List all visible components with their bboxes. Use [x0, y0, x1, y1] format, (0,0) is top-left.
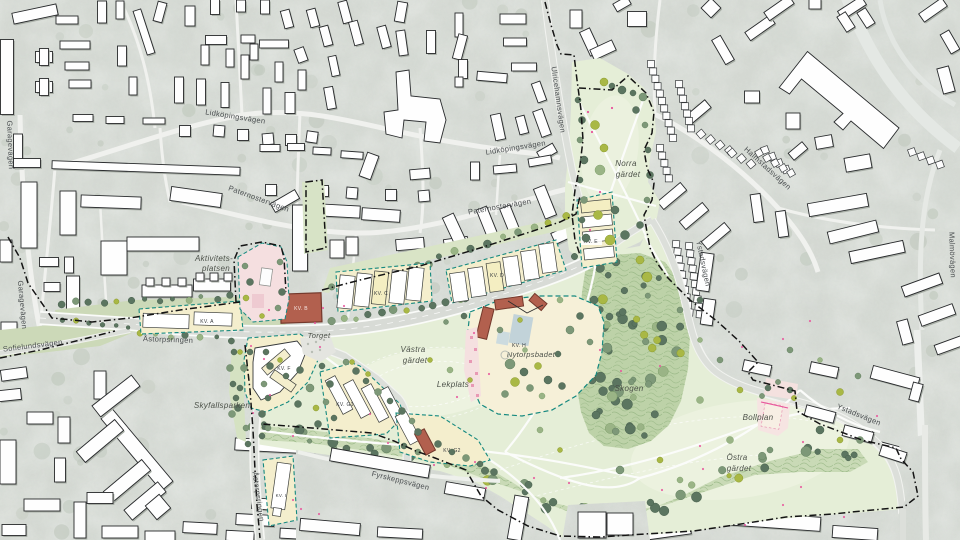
svg-text:KV. D: KV. D	[490, 273, 504, 279]
svg-text:KV. I: KV. I	[276, 493, 287, 498]
svg-text:Åstorpsringen: Åstorpsringen	[143, 334, 193, 345]
svg-text:Aktivitets-: Aktivitets-	[194, 254, 233, 263]
svg-text:gärdet: gärdet	[727, 464, 752, 473]
svg-text:Malmövägen: Malmövägen	[947, 232, 958, 278]
svg-text:KV. F: KV. F	[277, 366, 291, 372]
svg-text:Östra: Östra	[726, 453, 747, 462]
svg-text:platsen: platsen	[201, 264, 230, 273]
svg-text:KV. A: KV. A	[200, 319, 214, 325]
svg-text:KV. G1: KV. G1	[336, 402, 353, 408]
svg-text:Lekplats: Lekplats	[437, 380, 469, 389]
svg-text:Skogen: Skogen	[615, 384, 644, 393]
svg-text:Nytorpsbadet: Nytorpsbadet	[507, 350, 556, 359]
svg-text:Västra: Västra	[401, 345, 426, 354]
svg-text:Skyfallsparken: Skyfallsparken	[194, 401, 250, 410]
svg-text:Garagevägen: Garagevägen	[5, 120, 16, 169]
svg-text:gärdet: gärdet	[403, 356, 428, 365]
svg-text:Norra: Norra	[615, 159, 637, 168]
svg-text:gärdet: gärdet	[616, 170, 641, 179]
svg-text:Bollplan: Bollplan	[743, 413, 774, 422]
svg-text:KV. C: KV. C	[374, 291, 388, 297]
svg-text:Torget: Torget	[308, 331, 331, 340]
svg-text:KV. B: KV. B	[294, 306, 308, 312]
